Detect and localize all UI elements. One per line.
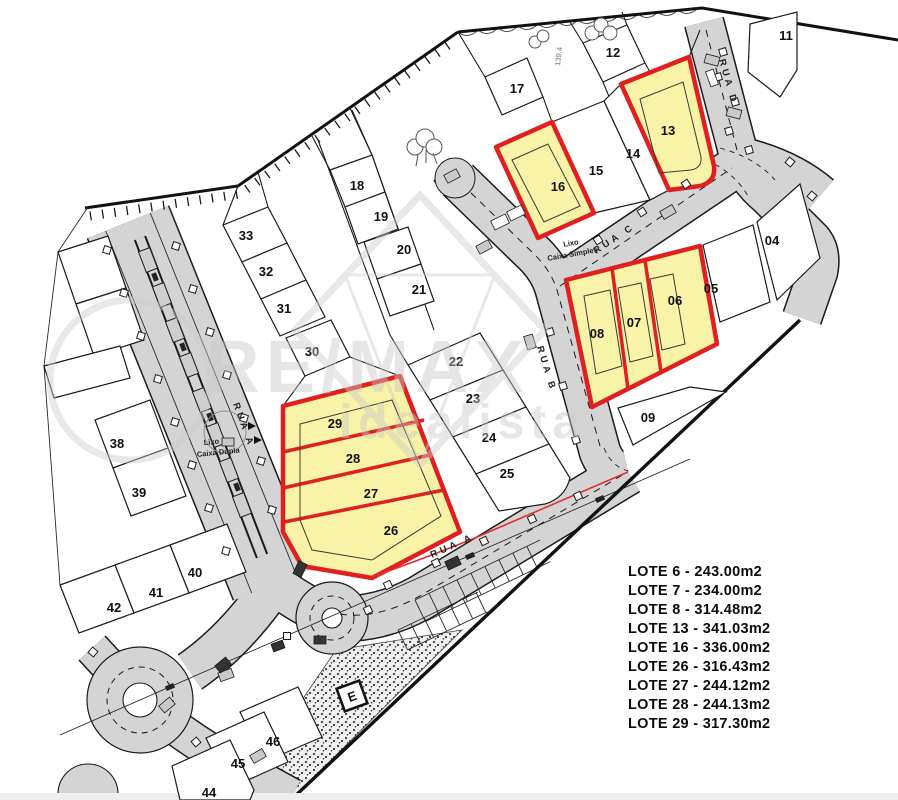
lot-label-42: 42 bbox=[107, 600, 121, 615]
lixo-dupla-line1: Lixo bbox=[203, 437, 220, 448]
lot-label-45: 45 bbox=[231, 756, 245, 771]
parcel-11 bbox=[748, 12, 797, 97]
lot-label-46: 46 bbox=[266, 734, 280, 749]
lot-label-18: 18 bbox=[350, 178, 364, 193]
lot-label-28: 28 bbox=[346, 451, 360, 466]
legend-item: LOTE 16 - 336.00m2 bbox=[628, 640, 770, 656]
lot-label-40: 40 bbox=[188, 565, 202, 580]
parcel-05 bbox=[703, 225, 770, 322]
legend-item: LOTE 27 - 244.12m2 bbox=[628, 678, 770, 694]
elevation-label: 139.4 bbox=[553, 46, 564, 67]
watermark-idealista-text: idealista bbox=[339, 396, 585, 449]
legend-item: LOTE 7 - 234.00m2 bbox=[628, 583, 762, 599]
legend: LOTE 6 - 243.00m2 LOTE 7 - 234.00m2 LOTE… bbox=[628, 564, 770, 732]
lot-label-25: 25 bbox=[500, 466, 514, 481]
lot-label-20: 20 bbox=[397, 242, 411, 257]
legend-item: LOTE 29 - 317.30m2 bbox=[628, 716, 770, 732]
lot-label-41: 41 bbox=[149, 585, 163, 600]
lot-label-32: 32 bbox=[259, 264, 273, 279]
lot-label-31: 31 bbox=[277, 301, 291, 316]
lot-label-27: 27 bbox=[364, 486, 378, 501]
lot-label-05: 05 bbox=[704, 281, 718, 296]
site-plan-map: E 17 12 11 18 19 20 21 33 32 31 30 15 14… bbox=[0, 0, 898, 800]
page-edge bbox=[0, 793, 898, 800]
site-plan-page: E 17 12 11 18 19 20 21 33 32 31 30 15 14… bbox=[0, 0, 898, 800]
parcel-09 bbox=[618, 387, 726, 445]
lixo-simples-line1: Lixo bbox=[563, 237, 580, 249]
lot-label-33: 33 bbox=[239, 228, 253, 243]
lot-label-26: 26 bbox=[384, 523, 398, 538]
lot-label-06: 06 bbox=[668, 293, 682, 308]
lot-label-17: 17 bbox=[510, 81, 524, 96]
legend-item: LOTE 28 - 244.13m2 bbox=[628, 697, 770, 713]
roundabout-small bbox=[296, 582, 368, 654]
lot-label-12: 12 bbox=[606, 45, 620, 60]
legend-item: LOTE 8 - 314.48m2 bbox=[628, 602, 762, 618]
lot-label-09: 09 bbox=[641, 410, 655, 425]
boundary-hachures bbox=[90, 44, 450, 216]
lot-label-11: 11 bbox=[779, 28, 793, 43]
lot-label-19: 19 bbox=[374, 209, 388, 224]
legend-item: LOTE 13 - 341.03m2 bbox=[628, 621, 770, 637]
lot-label-13: 13 bbox=[661, 123, 675, 138]
lot-label-21: 21 bbox=[412, 282, 426, 297]
lot-label-15: 15 bbox=[589, 163, 603, 178]
lot-label-08: 08 bbox=[590, 326, 604, 341]
lot-label-07: 07 bbox=[627, 315, 641, 330]
lot-label-16: 16 bbox=[551, 179, 565, 194]
lot-label-39: 39 bbox=[132, 485, 146, 500]
lot-label-04: 04 bbox=[765, 233, 780, 248]
lot-label-44: 44 bbox=[202, 785, 217, 800]
lot-label-38: 38 bbox=[110, 436, 124, 451]
lot-label-14: 14 bbox=[626, 146, 641, 161]
legend-item: LOTE 26 - 316.43m2 bbox=[628, 659, 770, 675]
legend-item: LOTE 6 - 243.00m2 bbox=[628, 564, 762, 580]
